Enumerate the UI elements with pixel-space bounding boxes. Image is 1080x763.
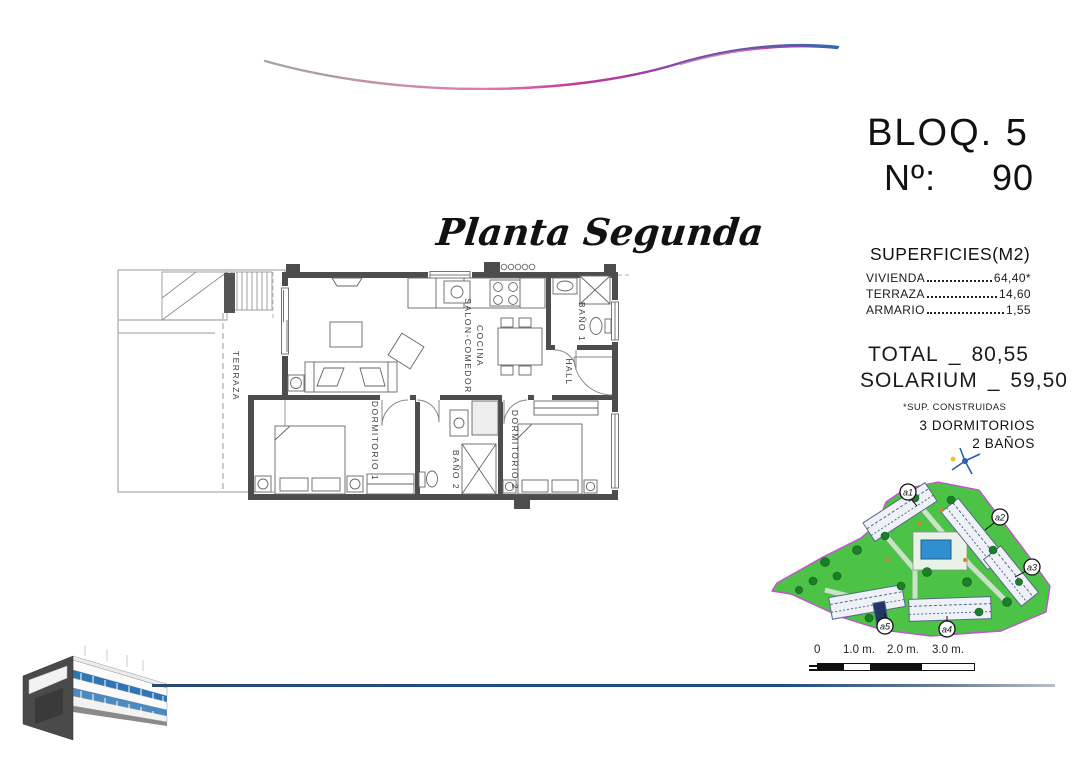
terrace-pillar	[224, 273, 235, 313]
compass-icon	[951, 448, 980, 474]
feature-bedrooms: 3 DORMITORIOS	[895, 417, 1035, 435]
scale-bar-segments	[817, 663, 975, 671]
scale-bar: 0 1.0 m. 2.0 m. 3.0 m.	[805, 644, 1000, 686]
site-label-a2: a2	[995, 513, 1005, 523]
wave-decoration	[250, 25, 850, 90]
surface-value: 14,60	[999, 287, 1031, 301]
room-label-salon-2: COCINA	[475, 325, 485, 367]
terrace-stairs	[162, 272, 272, 320]
sheet-header: BLOQ. 5 Nº: 90	[858, 112, 1038, 199]
dotted-leader	[927, 295, 997, 298]
scale-tick-3: 3.0 m.	[932, 644, 964, 656]
room-label-salon-1: SALON-COMEDOR	[463, 298, 473, 394]
room-label-dormitorio1: DORMITORIO 1	[370, 401, 380, 481]
plan-title: Planta Segunda	[428, 210, 773, 254]
total-row: TOTAL _ 80,55	[860, 343, 1035, 367]
building-render	[15, 640, 195, 755]
surface-value: 64,40*	[994, 271, 1031, 285]
solarium-value: 59,50	[1010, 369, 1068, 393]
solarium-row: SOLARIUM _ 59,50	[860, 369, 1035, 393]
dotted-leader	[927, 311, 1004, 314]
block-title: BLOQ. 5	[858, 112, 1038, 155]
solarium-separator: _	[988, 369, 1001, 393]
surface-label: TERRAZA	[866, 287, 925, 301]
surface-label: ARMARIO	[866, 303, 925, 317]
room-label-bano2: BAÑO 2	[451, 450, 461, 490]
bedroom1-furniture	[255, 426, 414, 494]
surface-row-terraza: TERRAZA 14,60	[860, 287, 1035, 301]
solarium-label: SOLARIUM	[860, 369, 978, 393]
total-label: TOTAL	[868, 343, 939, 367]
surface-row-vivienda: VIVIENDA 64,40*	[860, 271, 1035, 285]
room-label-hall: HALL	[564, 358, 574, 385]
site-plan: a1 a2 a3 a4 a5	[765, 440, 1065, 645]
baseline-rule	[152, 684, 1055, 687]
surfaces-footnote: *SUP. CONSTRUIDAS	[903, 402, 1006, 413]
site-label-a1: a1	[903, 488, 913, 498]
dining-set	[498, 318, 542, 375]
scale-tick-1: 1.0 m.	[843, 644, 875, 656]
room-label-terraza: TERRAZA	[231, 351, 241, 401]
scale-tick-2: 2.0 m.	[887, 644, 919, 656]
pool	[921, 540, 951, 559]
site-label-a4: a4	[942, 625, 952, 635]
surfaces-panel: SUPERFICIES(M2) VIVIENDA 64,40* TERRAZA …	[860, 244, 1035, 393]
unit-number-label: Nº:	[884, 157, 936, 199]
surfaces-title: SUPERFICIES(M2)	[860, 244, 1035, 265]
site-label-a3: a3	[1027, 563, 1037, 573]
surface-row-armario: ARMARIO 1,55	[860, 303, 1035, 317]
terrace-outline	[118, 270, 285, 492]
scale-tick-0: 0	[814, 644, 820, 656]
unit-number-value: 90	[992, 157, 1034, 199]
total-separator: _	[949, 343, 962, 367]
room-label-bano1: BAÑO 1	[577, 302, 587, 342]
site-label-a5: a5	[880, 622, 891, 632]
room-label-dormitorio2: DORMITORIO 2	[510, 410, 520, 490]
surface-label: VIVIENDA	[866, 271, 925, 285]
living-furniture	[288, 322, 424, 392]
total-value: 80,55	[971, 343, 1029, 367]
dotted-leader	[927, 279, 992, 282]
floor-plan: TERRAZA SALON-COMEDOR COCINA BAÑO 1 HALL…	[110, 258, 630, 513]
surface-value: 1,55	[1006, 303, 1031, 317]
